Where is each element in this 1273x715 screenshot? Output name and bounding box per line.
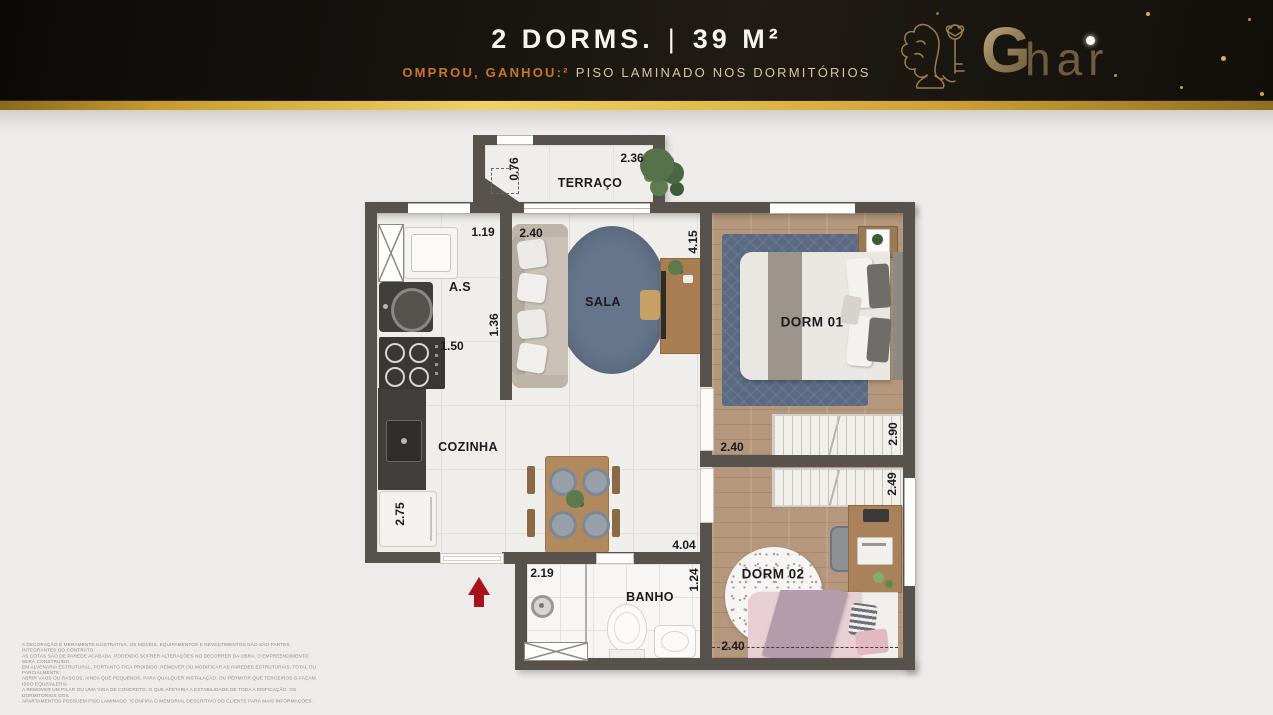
- floorplan-page: 2 DORMS.|39 M² OMPROU, GANHOU:²PISO LAMI…: [0, 0, 1273, 715]
- chair-seat: [582, 511, 610, 539]
- burner: [409, 343, 429, 363]
- subtitle-rest: PISO LAMINADO NOS DORMITÓRIOS: [570, 65, 871, 80]
- dim-terraco-w: 2.36: [620, 151, 643, 165]
- burner: [409, 367, 429, 387]
- dorm2-window: [904, 478, 916, 586]
- wall: [700, 455, 915, 467]
- chair-back: [612, 466, 620, 494]
- sparkle-dot: [1086, 36, 1095, 45]
- as-window: [408, 203, 470, 214]
- stove: [379, 337, 445, 389]
- disclaimer-line: EM ALVENARIA ESTRUTURAL, PORTANTO FICA P…: [22, 665, 319, 676]
- wall: [700, 202, 712, 387]
- tv-screen: [661, 271, 666, 339]
- burner: [385, 343, 405, 363]
- wall: [500, 213, 512, 400]
- refrigerator: [379, 491, 437, 547]
- dim-hall-w: 4.04: [672, 538, 695, 552]
- room-label-as: A.S: [449, 280, 471, 294]
- laptop: [857, 537, 893, 565]
- dim-sala-h: 4.15: [686, 230, 700, 253]
- sofa-pillow: [516, 342, 548, 374]
- stove-knobs: [435, 345, 438, 381]
- tv-plant-icon: [668, 260, 683, 275]
- chair-back: [527, 466, 535, 494]
- room-label-cozinha: COZINHA: [438, 440, 498, 454]
- title-separator: |: [654, 24, 693, 54]
- entrance-arrow-stem: [474, 594, 484, 607]
- bath-sink: [654, 625, 696, 658]
- tv-pouf: [640, 290, 660, 320]
- sofa: [512, 224, 568, 388]
- disclaimer-line: APARTAMENTOS POSSUEM PISO LAMINADO. ²CON…: [22, 698, 319, 704]
- dim-as-h: 1.36: [487, 313, 501, 336]
- dim-terraco-h: 0.76: [507, 157, 521, 180]
- disclaimer-line: AS COTAS SÃO DE PAREDE ACABADA, PODENDO …: [22, 653, 319, 664]
- table-plant-icon: [566, 490, 584, 508]
- shower-head: [531, 595, 554, 618]
- terrace-plant-icon: [640, 148, 674, 182]
- fridge-handle: [430, 497, 432, 541]
- disclaimer-line: A REMOVER UM PILAR OU UMA VIGA DE CONCRE…: [22, 687, 319, 698]
- shaft-xbox-banho: [524, 642, 588, 661]
- room-label-banho: BANHO: [626, 590, 674, 604]
- disclaimer-line: ABRIR VÃOS OU RASGOS, AINDA QUE PEQUENOS…: [22, 676, 319, 687]
- faucet-dot: [401, 438, 407, 444]
- desk-printer: [863, 509, 889, 522]
- lion-key-logo-icon: [893, 16, 985, 92]
- gold-divider-shadow: [0, 109, 1273, 135]
- desk-plant-icon: [885, 580, 893, 588]
- terrace-window: [497, 135, 533, 145]
- toilet: [607, 604, 647, 652]
- brand-logo: G har: [893, 14, 1193, 94]
- faucet-dot: [383, 304, 388, 309]
- accent-pillow: [866, 263, 891, 308]
- chair-back: [527, 509, 535, 537]
- sofa-armrest: [512, 375, 568, 388]
- room-label-sala: SALA: [585, 295, 621, 309]
- dorm2-door: [700, 468, 714, 523]
- dim-dorm2-w: 2.40: [721, 639, 744, 653]
- chair-seat: [582, 468, 610, 496]
- room-label-terraco: TERRAÇO: [558, 176, 623, 190]
- sparkle-dot: [1221, 56, 1226, 61]
- dim-dorm2-h: 2.49: [885, 472, 899, 495]
- sofa-pillow: [517, 309, 548, 340]
- dim-as-w: 1.19: [471, 225, 494, 239]
- wall: [365, 552, 440, 563]
- dorm1-door: [700, 388, 714, 451]
- sofa-pillow: [516, 272, 547, 303]
- wall: [903, 202, 915, 670]
- dim-dorm1-h: 2.90: [886, 422, 900, 445]
- dim-banho-h: 1.24: [687, 568, 701, 591]
- dim-kitchen-w: 1.50: [440, 339, 463, 353]
- brand-initial: G: [981, 18, 1031, 82]
- dorm2-desk: [848, 505, 902, 593]
- title-area: 39 M²: [693, 24, 782, 54]
- pink-pillow: [855, 628, 889, 655]
- dim-dorm1-w: 2.40: [720, 440, 743, 454]
- room-label-dorm2: DORM 02: [742, 567, 805, 582]
- burner: [385, 367, 405, 387]
- wall: [365, 202, 377, 563]
- terrace-sliding-door: [524, 203, 650, 214]
- disclaimer-text: A DECORAÇÃO É MERAMENTE ILUSTRATIVA. OS …: [22, 642, 319, 704]
- header: 2 DORMS.|39 M² OMPROU, GANHOU:²PISO LAMI…: [0, 0, 1273, 100]
- bathroom-door: [596, 553, 634, 564]
- dorm1-window: [770, 203, 855, 214]
- dim-kitchen-h: 2.75: [393, 502, 407, 525]
- headboard: [893, 252, 903, 380]
- sofa-pillow: [516, 238, 548, 270]
- shaft-xbox-as: [378, 224, 404, 282]
- subtitle-highlight: OMPROU, GANHOU:²: [402, 65, 569, 80]
- entrance-door: [440, 553, 504, 564]
- chair-back: [612, 509, 620, 537]
- dim-sala-w: 2.40: [519, 226, 542, 240]
- sparkle-dot: [1146, 12, 1150, 16]
- wall: [700, 522, 712, 670]
- gold-divider: [0, 100, 1273, 110]
- title-dorms: 2 DORMS.: [491, 24, 654, 54]
- brand-name: har: [1025, 36, 1109, 82]
- accent-pillow: [866, 317, 892, 363]
- washing-machine: [404, 227, 458, 279]
- dim-banho-w: 2.19: [530, 566, 553, 580]
- laundry-sink: [379, 282, 433, 332]
- sparkle-dot: [1260, 92, 1264, 96]
- sparkle-dot: [936, 12, 939, 15]
- kitchen-sink: [386, 420, 422, 462]
- room-label-dorm1: DORM 01: [781, 315, 844, 330]
- sparkle-dot: [1114, 74, 1117, 77]
- desk-plant-icon: [873, 572, 884, 583]
- tv-deco: [683, 275, 693, 283]
- sparkle-dot: [1248, 18, 1251, 21]
- entrance-arrow-icon: [468, 577, 490, 595]
- wall: [473, 133, 485, 202]
- sparkle-dot: [1180, 86, 1183, 89]
- disclaimer-line: A DECORAÇÃO É MERAMENTE ILUSTRATIVA. OS …: [22, 642, 319, 653]
- chair-seat: [549, 511, 577, 539]
- washer-door: [411, 234, 451, 272]
- laundry-basin: [391, 288, 433, 332]
